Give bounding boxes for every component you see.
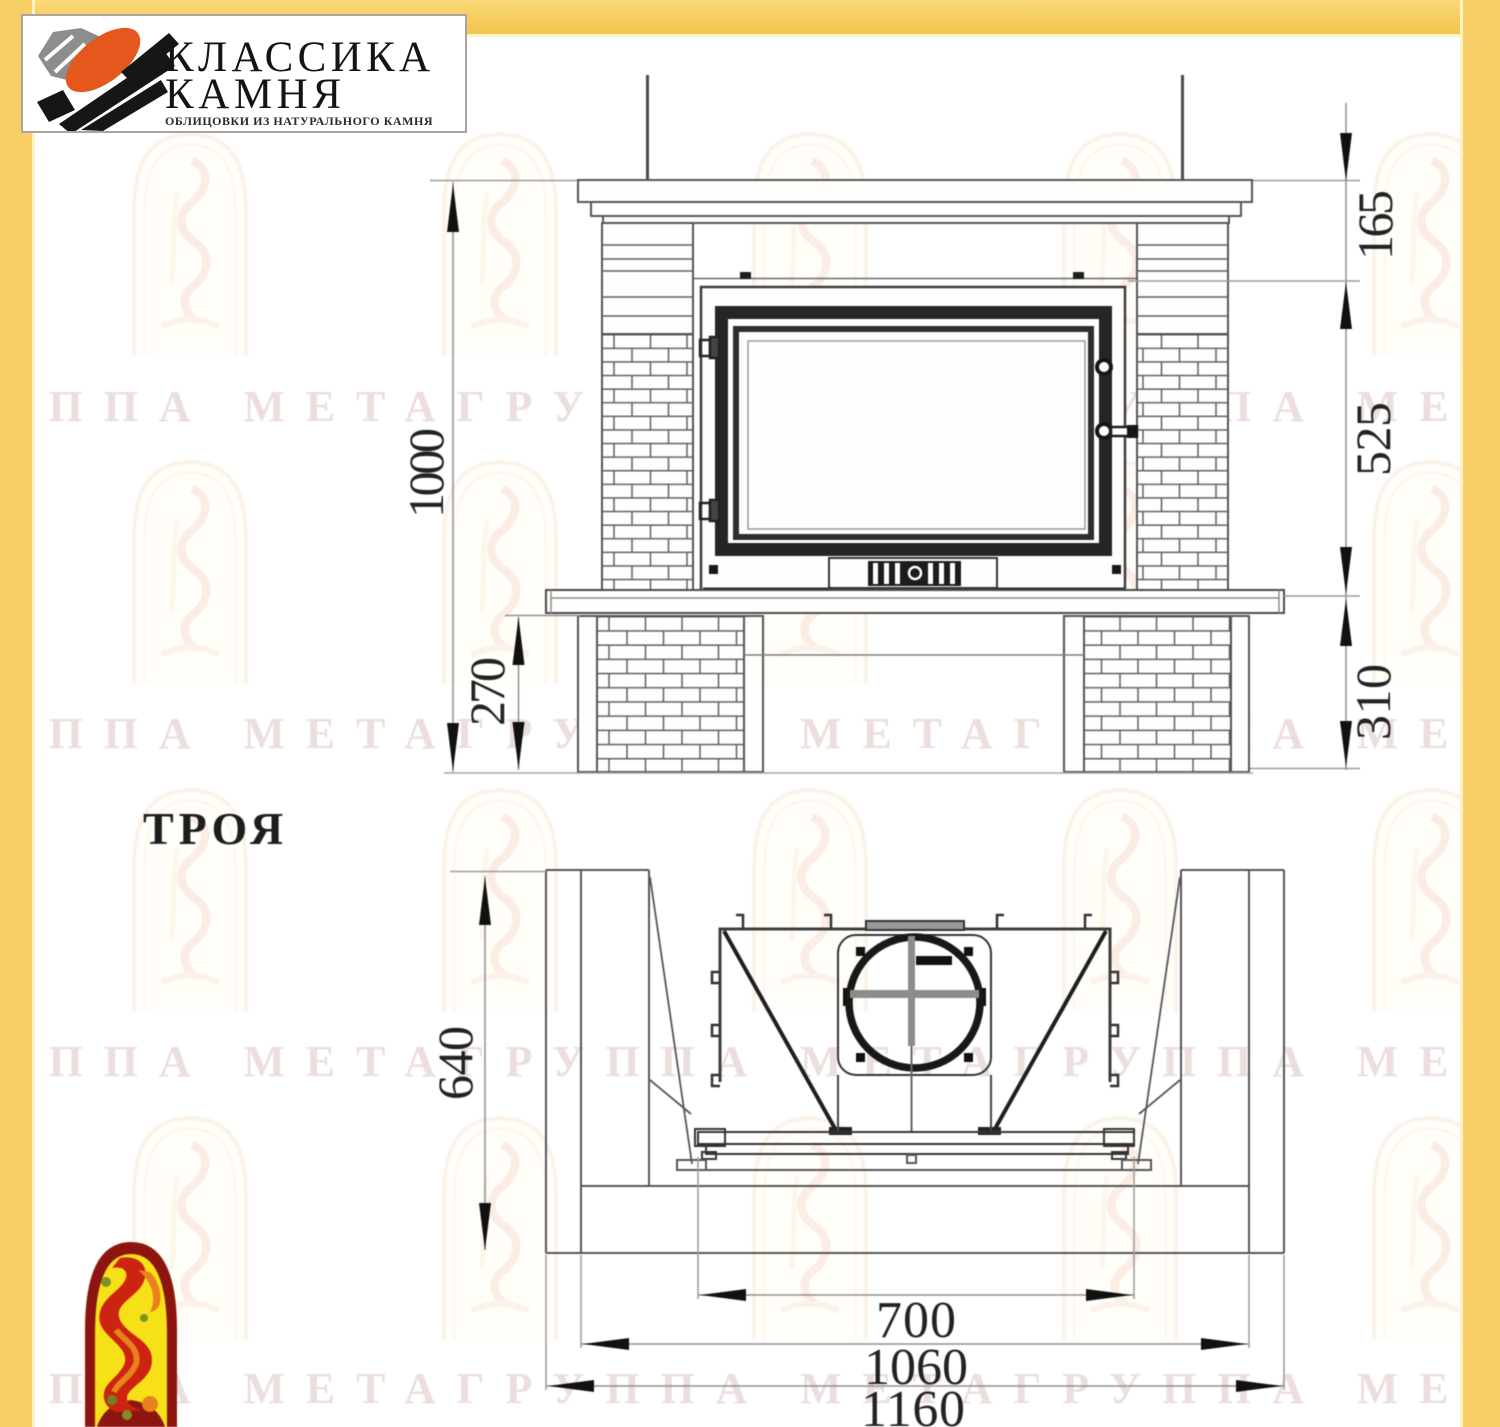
svg-text:ГРУППА МЕТАГРУППА МЕТАГРУППА М: ГРУППА МЕТАГРУППА МЕТАГРУППА МЕТАГ	[0, 1037, 1500, 1086]
svg-text:1160: 1160	[861, 1381, 965, 1427]
svg-text:310: 310	[1345, 664, 1401, 740]
svg-text:ТРОЯ: ТРОЯ	[143, 803, 288, 854]
svg-text:1000: 1000	[398, 428, 454, 518]
svg-text:270: 270	[459, 657, 515, 726]
svg-text:640: 640	[427, 1026, 483, 1100]
svg-text:525: 525	[1345, 402, 1401, 476]
svg-text:ГРУППА МЕТАГРУППА МЕТАГРУППА М: ГРУППА МЕТАГРУППА МЕТАГРУППА МЕТАГ	[0, 1364, 1500, 1413]
svg-text:ОБЛИЦОВКИ ИЗ НАТУРАЛЬНОГО КАМН: ОБЛИЦОВКИ ИЗ НАТУРАЛЬНОГО КАМНЯ	[165, 114, 433, 128]
svg-text:КАМНЯ: КАМНЯ	[165, 71, 347, 118]
svg-text:165: 165	[1347, 190, 1403, 260]
